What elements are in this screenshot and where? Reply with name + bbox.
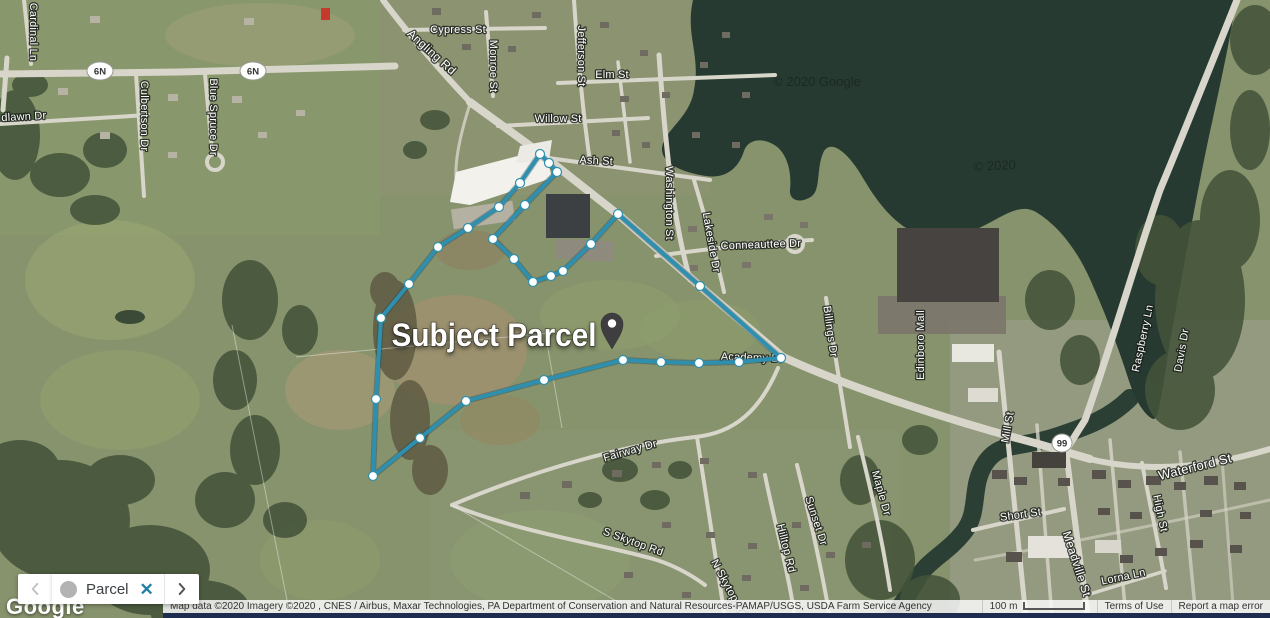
terrain-imagery [0,0,1270,618]
google-watermark: © 2020 Google [773,74,861,89]
parcel-vertex-handle[interactable] [619,356,628,365]
parcel-vertex-handle[interactable] [516,179,525,188]
prev-layer-button[interactable] [18,574,52,604]
svg-text:6N: 6N [247,67,259,78]
parcel-vertex-handle[interactable] [377,314,386,323]
layer-chip-label: Parcel [86,581,129,598]
street-label: Washington St [663,166,675,240]
parcel-vertex-handle[interactable] [462,397,471,406]
street-label: Culbertson Dr [138,81,150,152]
street-label: Willow St [534,113,581,125]
parcel-vertex-handle[interactable] [587,240,596,249]
map-data-attribution: Map data ©2020 Imagery ©2020 , CNES / Ai… [163,600,982,613]
next-layer-button[interactable] [165,574,199,604]
google-watermark: © 2020 [973,157,1016,174]
parcel-vertex-handle[interactable] [545,159,554,168]
close-icon[interactable]: ✕ [140,581,154,598]
subject-parcel-label: Subject Parcel [392,317,597,353]
parcel-vertex-handle[interactable] [777,354,786,363]
parcel-vertex-handle[interactable] [464,224,473,233]
parcel-vertex-handle[interactable] [735,358,744,367]
street-label: Jefferson St [575,26,587,87]
parcel-vertex-handle[interactable] [614,210,623,219]
parcel-vertex-handle[interactable] [372,395,381,404]
route-shield: 99 [1052,434,1072,452]
parcel-vertex-handle[interactable] [657,358,666,367]
parcel-vertex-handle[interactable] [510,255,519,264]
terms-of-use-link[interactable]: Terms of Use [1097,600,1171,613]
parcel-vertex-handle[interactable] [529,278,538,287]
bottom-border-strip [163,613,1270,618]
parcel-vertex-handle[interactable] [547,272,556,281]
street-label: Edinboro Mall [915,310,927,380]
street-label: Cardinal Ln [27,3,39,61]
parcel-vertex-handle[interactable] [369,472,378,481]
street-label: Elm St [595,69,629,81]
map-attribution-bar: Map data ©2020 Imagery ©2020 , CNES / Ai… [163,600,1270,613]
route-shield: 6N [240,62,266,80]
street-label: Ash St [579,154,613,168]
svg-text:99: 99 [1057,439,1068,450]
report-map-error-link[interactable]: Report a map error [1171,600,1270,613]
street-label: Cypress St [430,24,486,36]
scale-bar [1023,602,1085,610]
svg-text:6N: 6N [94,67,106,78]
map-viewport[interactable]: Academy Dr Subject Parcel Cardinal Lndla… [0,0,1270,618]
parcel-vertex-handle[interactable] [695,359,704,368]
scale-label: 100 m [990,600,1018,613]
parcel-vertex-handle[interactable] [696,282,705,291]
subject-parcel-annotation: Subject Parcel [392,313,624,353]
chevron-left-icon [24,578,46,600]
parcel-vertex-handle[interactable] [416,434,425,443]
street-label: Blue Spruce Dr [207,78,219,156]
parcel-vertex-handle[interactable] [521,201,530,210]
parcel-vertex-handle[interactable] [489,235,498,244]
chevron-right-icon [171,578,193,600]
satellite-map[interactable]: Academy Dr Subject Parcel Cardinal Lndla… [0,0,1270,618]
parcel-vertex-handle[interactable] [540,376,549,385]
route-shield: 6N [87,62,113,80]
parcel-vertex-handle[interactable] [553,168,562,177]
parcel-layer-chip[interactable]: Parcel ✕ [52,574,164,604]
parcel-vertex-handle[interactable] [536,150,545,159]
layer-dot-icon [60,581,77,598]
layer-nav-bar: Parcel ✕ [18,574,199,604]
scale-control: 100 m [982,600,1097,613]
parcel-vertex-handle[interactable] [559,267,568,276]
street-label: dlawn Dr [1,110,47,124]
parcel-vertex-handle[interactable] [434,243,443,252]
parcel-vertex-handle[interactable] [495,203,504,212]
parcel-vertex-handle[interactable] [405,280,414,289]
street-label: Monroe St [487,40,499,93]
